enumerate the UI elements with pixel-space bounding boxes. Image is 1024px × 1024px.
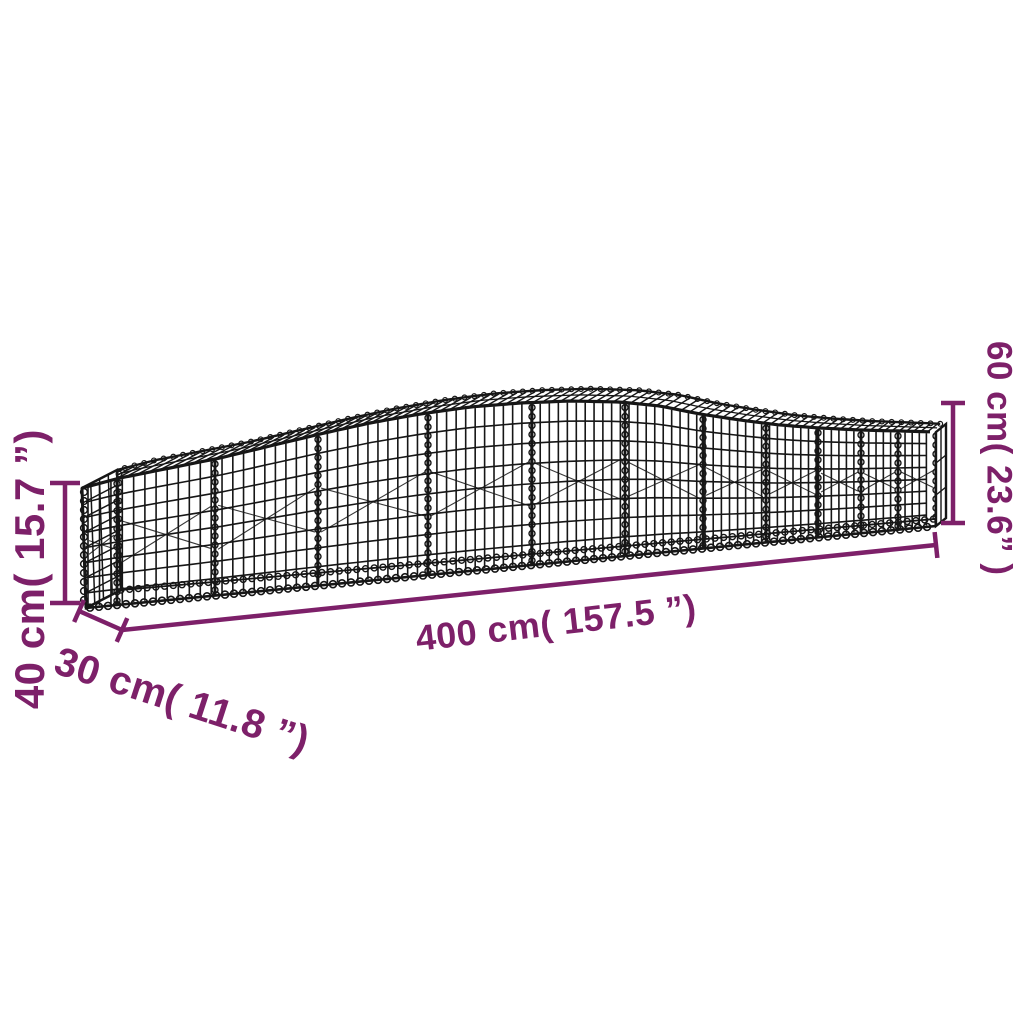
dimension-label-height-right: 60 cm( 23.6” ) [979, 303, 1018, 613]
dimension-line-depth [79, 611, 122, 630]
gabion-basket-illustration [0, 0, 1024, 1024]
basket-front-mesh [82, 401, 939, 611]
product-dimension-diagram: 40 cm( 15.7 ”) 30 cm( 11.8 ”) 400 cm( 15… [0, 0, 1024, 1024]
dimension-label-height-left: 40 cm( 15.7 ”) [7, 359, 53, 779]
basket-right-end [936, 424, 946, 526]
